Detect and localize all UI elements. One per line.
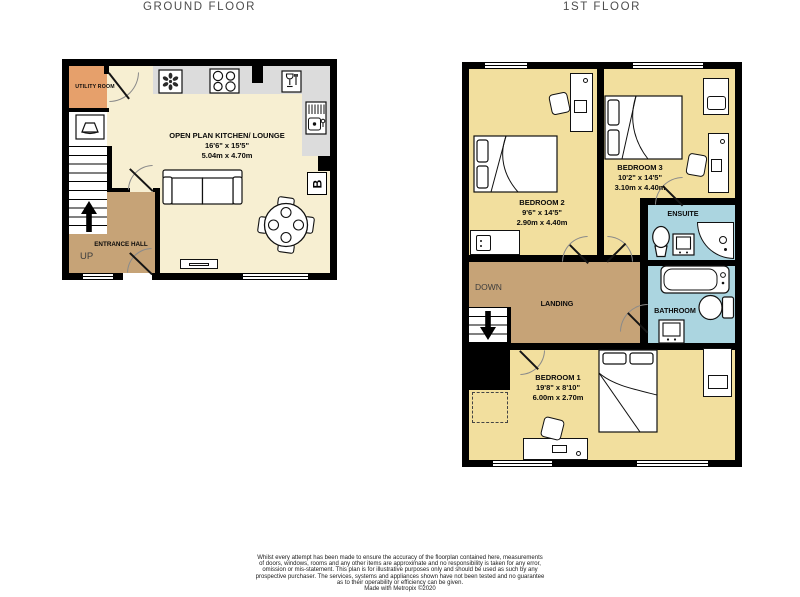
reduced-headroom-outline bbox=[472, 392, 508, 423]
dining-table bbox=[257, 196, 315, 254]
first-floor-title: 1ST FLOOR bbox=[462, 1, 742, 13]
up-arrow-icon bbox=[81, 201, 97, 232]
hall-top-wall-left bbox=[107, 188, 130, 192]
bedroom-3-bed bbox=[604, 95, 683, 160]
ensuite-label: ENSUITE bbox=[648, 209, 718, 218]
void-block bbox=[469, 350, 510, 390]
ensuite-top-wall-right bbox=[683, 198, 735, 205]
tv-unit bbox=[180, 259, 218, 269]
dishwasher-icon bbox=[281, 70, 302, 93]
bedroom-1-label: BEDROOM 1 19'8" x 8'10" 6.00m x 2.70m bbox=[508, 373, 608, 403]
bedroom-1-name: BEDROOM 1 bbox=[508, 373, 608, 383]
tv-unit-detail bbox=[189, 263, 209, 266]
window bbox=[485, 62, 527, 69]
bedroom-3-bench bbox=[703, 78, 729, 115]
cabinet-detail bbox=[476, 235, 491, 251]
chimney-stub bbox=[252, 66, 263, 83]
floorplan-page: GROUND FLOOR 1ST FLOOR UTILITY ROOM bbox=[0, 0, 800, 597]
window bbox=[83, 273, 113, 280]
disclaimer: Whilst every attempt has been made to en… bbox=[0, 555, 800, 592]
stairs-wall-stub-1f bbox=[507, 307, 511, 343]
disclaimer-line: Made with Metropix ©2020 bbox=[0, 586, 800, 592]
bedroom-3-name: BEDROOM 3 bbox=[604, 163, 676, 173]
bedroom-2-cabinet bbox=[470, 230, 520, 255]
bedroom-2-chair bbox=[548, 91, 571, 115]
window bbox=[633, 62, 703, 69]
ground-floor-plan: UTILITY ROOM ENTRANCE HALL UP bbox=[62, 59, 337, 280]
ensuite-left-wall bbox=[640, 198, 648, 307]
bedroom-1-wardrobe bbox=[703, 348, 732, 397]
shower-head-icon bbox=[719, 236, 727, 244]
first-floor-plan: BEDROOM 2 9'6" x 14'5" 2.90m x 4.40m BED… bbox=[462, 62, 742, 467]
bedroom-3-size-imperial: 10'2" x 14'5" bbox=[604, 173, 676, 183]
desk-lamp-icon bbox=[583, 78, 588, 83]
landing-top-wall-right bbox=[635, 255, 640, 262]
shower-drain-icon bbox=[724, 248, 727, 251]
washing-machine-icon bbox=[75, 114, 105, 140]
bedroom-3-chair bbox=[685, 153, 708, 178]
bedroom-2-name: BEDROOM 2 bbox=[492, 198, 592, 208]
bathroom-left-wall bbox=[640, 332, 648, 343]
boiler-label: B bbox=[310, 179, 324, 188]
bedroom-3-size-metric: 3.10m x 4.40m bbox=[604, 183, 676, 193]
up-label: UP bbox=[80, 251, 93, 262]
bedroom-2-label: BEDROOM 2 9'6" x 14'5" 2.90m x 4.40m bbox=[492, 198, 592, 228]
right-wall-stub bbox=[318, 156, 330, 171]
bedroom-3-label: BEDROOM 3 10'2" x 14'5" 3.10m x 4.40m bbox=[604, 163, 676, 193]
bedroom-2-size-imperial: 9'6" x 14'5" bbox=[492, 208, 592, 218]
desk-lamp-icon bbox=[720, 139, 725, 144]
kitchen-lounge-size-metric: 5.04m x 4.70m bbox=[157, 151, 297, 161]
hall-top-wall-right bbox=[153, 188, 160, 192]
ground-floor-title: GROUND FLOOR bbox=[62, 1, 337, 13]
bathroom-label: BATHROOM bbox=[650, 306, 700, 315]
desk-lamp-icon bbox=[576, 451, 581, 456]
desk-item bbox=[711, 159, 722, 172]
boiler: B bbox=[307, 172, 327, 195]
hob-icon bbox=[209, 68, 240, 94]
wardrobe-detail bbox=[708, 375, 728, 389]
landing-label: LANDING bbox=[517, 299, 597, 308]
window bbox=[637, 460, 708, 467]
bedroom-1-size-metric: 6.00m x 2.70m bbox=[508, 393, 608, 403]
bathtub bbox=[660, 265, 730, 294]
window bbox=[243, 273, 308, 280]
sofa bbox=[162, 169, 243, 205]
kitchen-lounge-name: OPEN PLAN KITCHEN/ LOUNGE bbox=[157, 131, 297, 141]
stairs-wall-stub bbox=[107, 146, 112, 192]
extractor-fan-icon bbox=[158, 69, 183, 94]
front-door-opening bbox=[123, 273, 152, 280]
landing-top-wall-mid bbox=[588, 255, 607, 262]
bedroom-2-size-metric: 2.90m x 4.40m bbox=[492, 218, 592, 228]
bedroom-2-bed bbox=[473, 135, 558, 193]
bathroom-sink bbox=[658, 319, 685, 344]
desk-item bbox=[574, 100, 587, 113]
sink-icon bbox=[305, 101, 327, 135]
bedroom-1-desk bbox=[523, 438, 588, 460]
kitchen-lounge-label: OPEN PLAN KITCHEN/ LOUNGE 16'6" x 15'5" … bbox=[157, 131, 297, 161]
ensuite-toilet bbox=[651, 225, 671, 258]
ensuite-top-wall-left bbox=[648, 198, 655, 205]
desk-item bbox=[552, 445, 567, 453]
kitchen-lounge-size-imperial: 16'6" x 15'5" bbox=[157, 141, 297, 151]
bedroom-2-desk bbox=[570, 73, 593, 132]
bedroom-1-top-wall-left bbox=[469, 343, 520, 350]
bench-detail bbox=[707, 96, 726, 110]
landing-top-wall-left bbox=[469, 255, 560, 262]
bedroom-1-size-imperial: 19'8" x 8'10" bbox=[508, 383, 608, 393]
bedroom-divider-wall bbox=[597, 69, 604, 262]
window bbox=[493, 460, 552, 467]
bedroom-3-desk bbox=[708, 133, 729, 193]
ensuite-sink bbox=[672, 233, 695, 256]
down-label: DOWN bbox=[475, 282, 502, 292]
bathroom-toilet bbox=[697, 293, 735, 322]
hall-right-wall bbox=[155, 192, 160, 273]
down-arrow-icon bbox=[480, 311, 496, 340]
entrance-hall-label: ENTRANCE HALL bbox=[84, 241, 158, 248]
